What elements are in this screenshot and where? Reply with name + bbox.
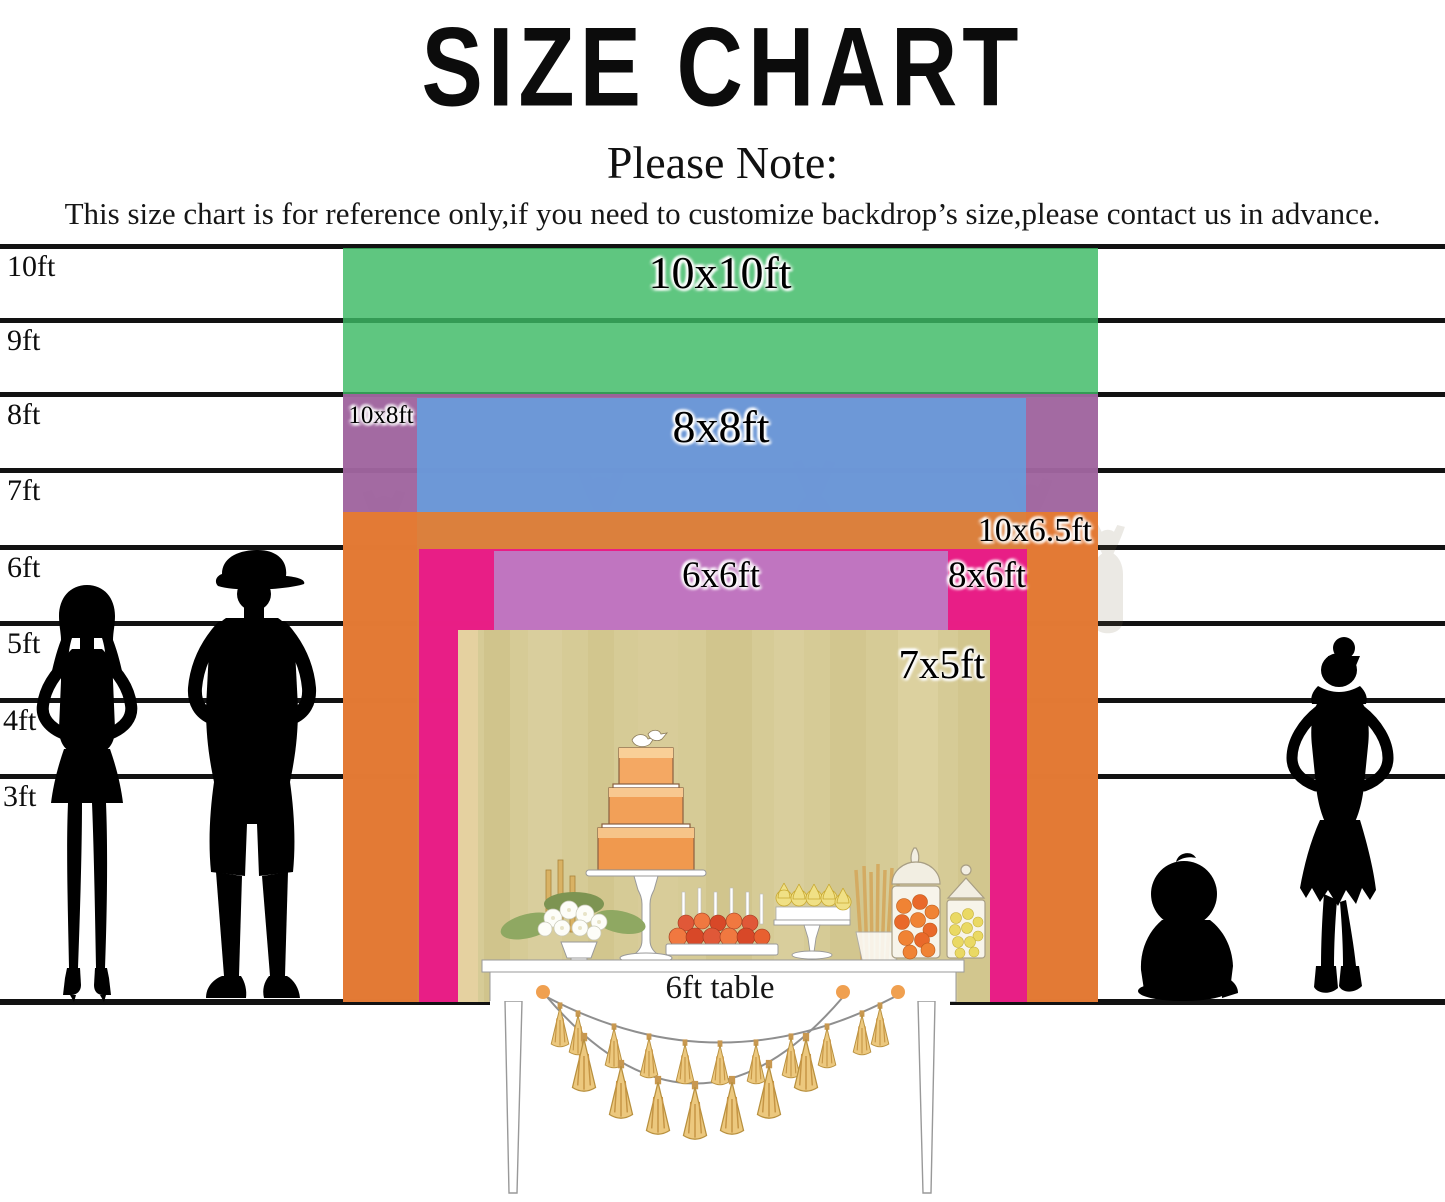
page-title: SIZE CHART xyxy=(0,4,1445,132)
label-10x6.5ft: 10x6.5ft xyxy=(860,512,1092,550)
label-8x6ft: 8x6ft xyxy=(887,554,1087,597)
table-size-label: 6ft table xyxy=(560,970,880,1007)
size-chart-infographic: SIZE CHART Please Note: This size chart … xyxy=(0,0,1445,1202)
ruler-label-10ft: 10ft xyxy=(7,250,55,284)
upper-swag-tassels xyxy=(551,1002,889,1084)
label-7x5ft: 7x5ft xyxy=(790,640,985,688)
baby-silhouette xyxy=(1126,850,1252,1003)
woman-silhouette-left xyxy=(20,583,154,1003)
note-heading: Please Note: xyxy=(0,136,1445,189)
ruler-label-7ft: 7ft xyxy=(7,474,40,508)
tassel-garland xyxy=(490,985,960,1200)
label-8x8ft: 8x8ft xyxy=(571,400,871,453)
ruler-label-9ft: 9ft xyxy=(7,324,40,358)
woman-silhouette-right xyxy=(1264,636,1414,1004)
label-10x8ft: 10x8ft xyxy=(343,402,419,430)
label-10x10ft: 10x10ft xyxy=(570,246,870,299)
ruler-label-6ft: 6ft xyxy=(7,551,40,585)
note-body: This size chart is for reference only,if… xyxy=(0,196,1445,232)
man-silhouette xyxy=(166,548,336,1004)
label-6x6ft: 6x6ft xyxy=(621,554,821,597)
ruler-label-8ft: 8ft xyxy=(7,398,40,432)
